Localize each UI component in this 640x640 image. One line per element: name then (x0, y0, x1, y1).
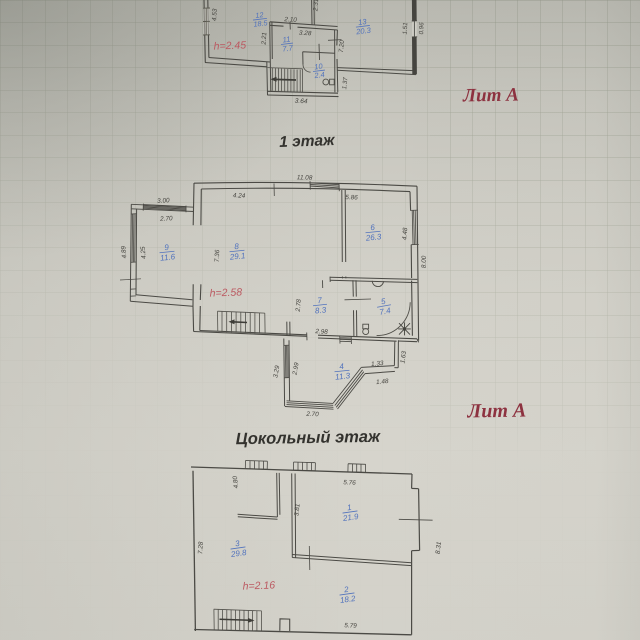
svg-text:4.24: 4.24 (233, 192, 246, 199)
svg-text:Лит А: Лит А (466, 399, 526, 422)
svg-text:11.3: 11.3 (335, 371, 351, 382)
svg-text:4.89: 4.89 (120, 245, 128, 258)
svg-text:4.48: 4.48 (401, 227, 409, 240)
svg-text:7.20: 7.20 (338, 39, 346, 53)
svg-text:Цокольный этаж: Цокольный этаж (236, 428, 382, 449)
svg-text:1.33: 1.33 (371, 360, 385, 368)
svg-text:5.76: 5.76 (343, 479, 356, 486)
svg-text:3.81: 3.81 (293, 503, 301, 517)
svg-text:2.21: 2.21 (261, 32, 269, 46)
svg-text:7.28: 7.28 (197, 541, 205, 554)
svg-text:4.25: 4.25 (140, 246, 148, 259)
svg-text:3.00: 3.00 (157, 197, 170, 205)
svg-text:18.5: 18.5 (253, 18, 269, 29)
svg-text:5.86: 5.86 (345, 194, 358, 201)
svg-text:8.3: 8.3 (315, 305, 328, 315)
svg-text:7.7: 7.7 (282, 43, 294, 53)
svg-text:5.79: 5.79 (344, 622, 357, 629)
svg-text:3.64: 3.64 (294, 98, 308, 106)
svg-text:1.51: 1.51 (402, 22, 409, 34)
svg-text:2.10: 2.10 (283, 16, 297, 24)
svg-text:0.96: 0.96 (418, 22, 425, 35)
svg-text:1.37: 1.37 (341, 76, 349, 89)
svg-text:29.1: 29.1 (228, 251, 245, 262)
svg-text:h=2.16: h=2.16 (242, 579, 275, 592)
svg-text:1 этаж: 1 этаж (279, 132, 336, 151)
svg-text:11.6: 11.6 (160, 252, 176, 263)
svg-text:2.70: 2.70 (159, 215, 173, 223)
svg-text:4.53: 4.53 (211, 8, 219, 21)
svg-text:8.31: 8.31 (435, 541, 443, 555)
svg-text:1.48: 1.48 (376, 378, 390, 386)
svg-text:2.98: 2.98 (314, 328, 328, 336)
svg-text:h=2.45: h=2.45 (213, 39, 246, 52)
svg-text:26.3: 26.3 (364, 232, 382, 243)
svg-text:11.08: 11.08 (297, 174, 313, 182)
svg-text:2.4: 2.4 (313, 70, 325, 80)
svg-text:2.70: 2.70 (305, 411, 319, 418)
svg-text:2.31: 2.31 (312, 0, 320, 12)
svg-text:7.36: 7.36 (214, 249, 221, 262)
svg-text:3.28: 3.28 (299, 30, 312, 38)
svg-text:8.00: 8.00 (421, 255, 428, 268)
svg-text:Лит А: Лит А (462, 85, 519, 107)
svg-text:4.80: 4.80 (232, 475, 240, 489)
svg-text:2.78: 2.78 (295, 298, 303, 312)
svg-text:h=2.58: h=2.58 (209, 286, 242, 299)
